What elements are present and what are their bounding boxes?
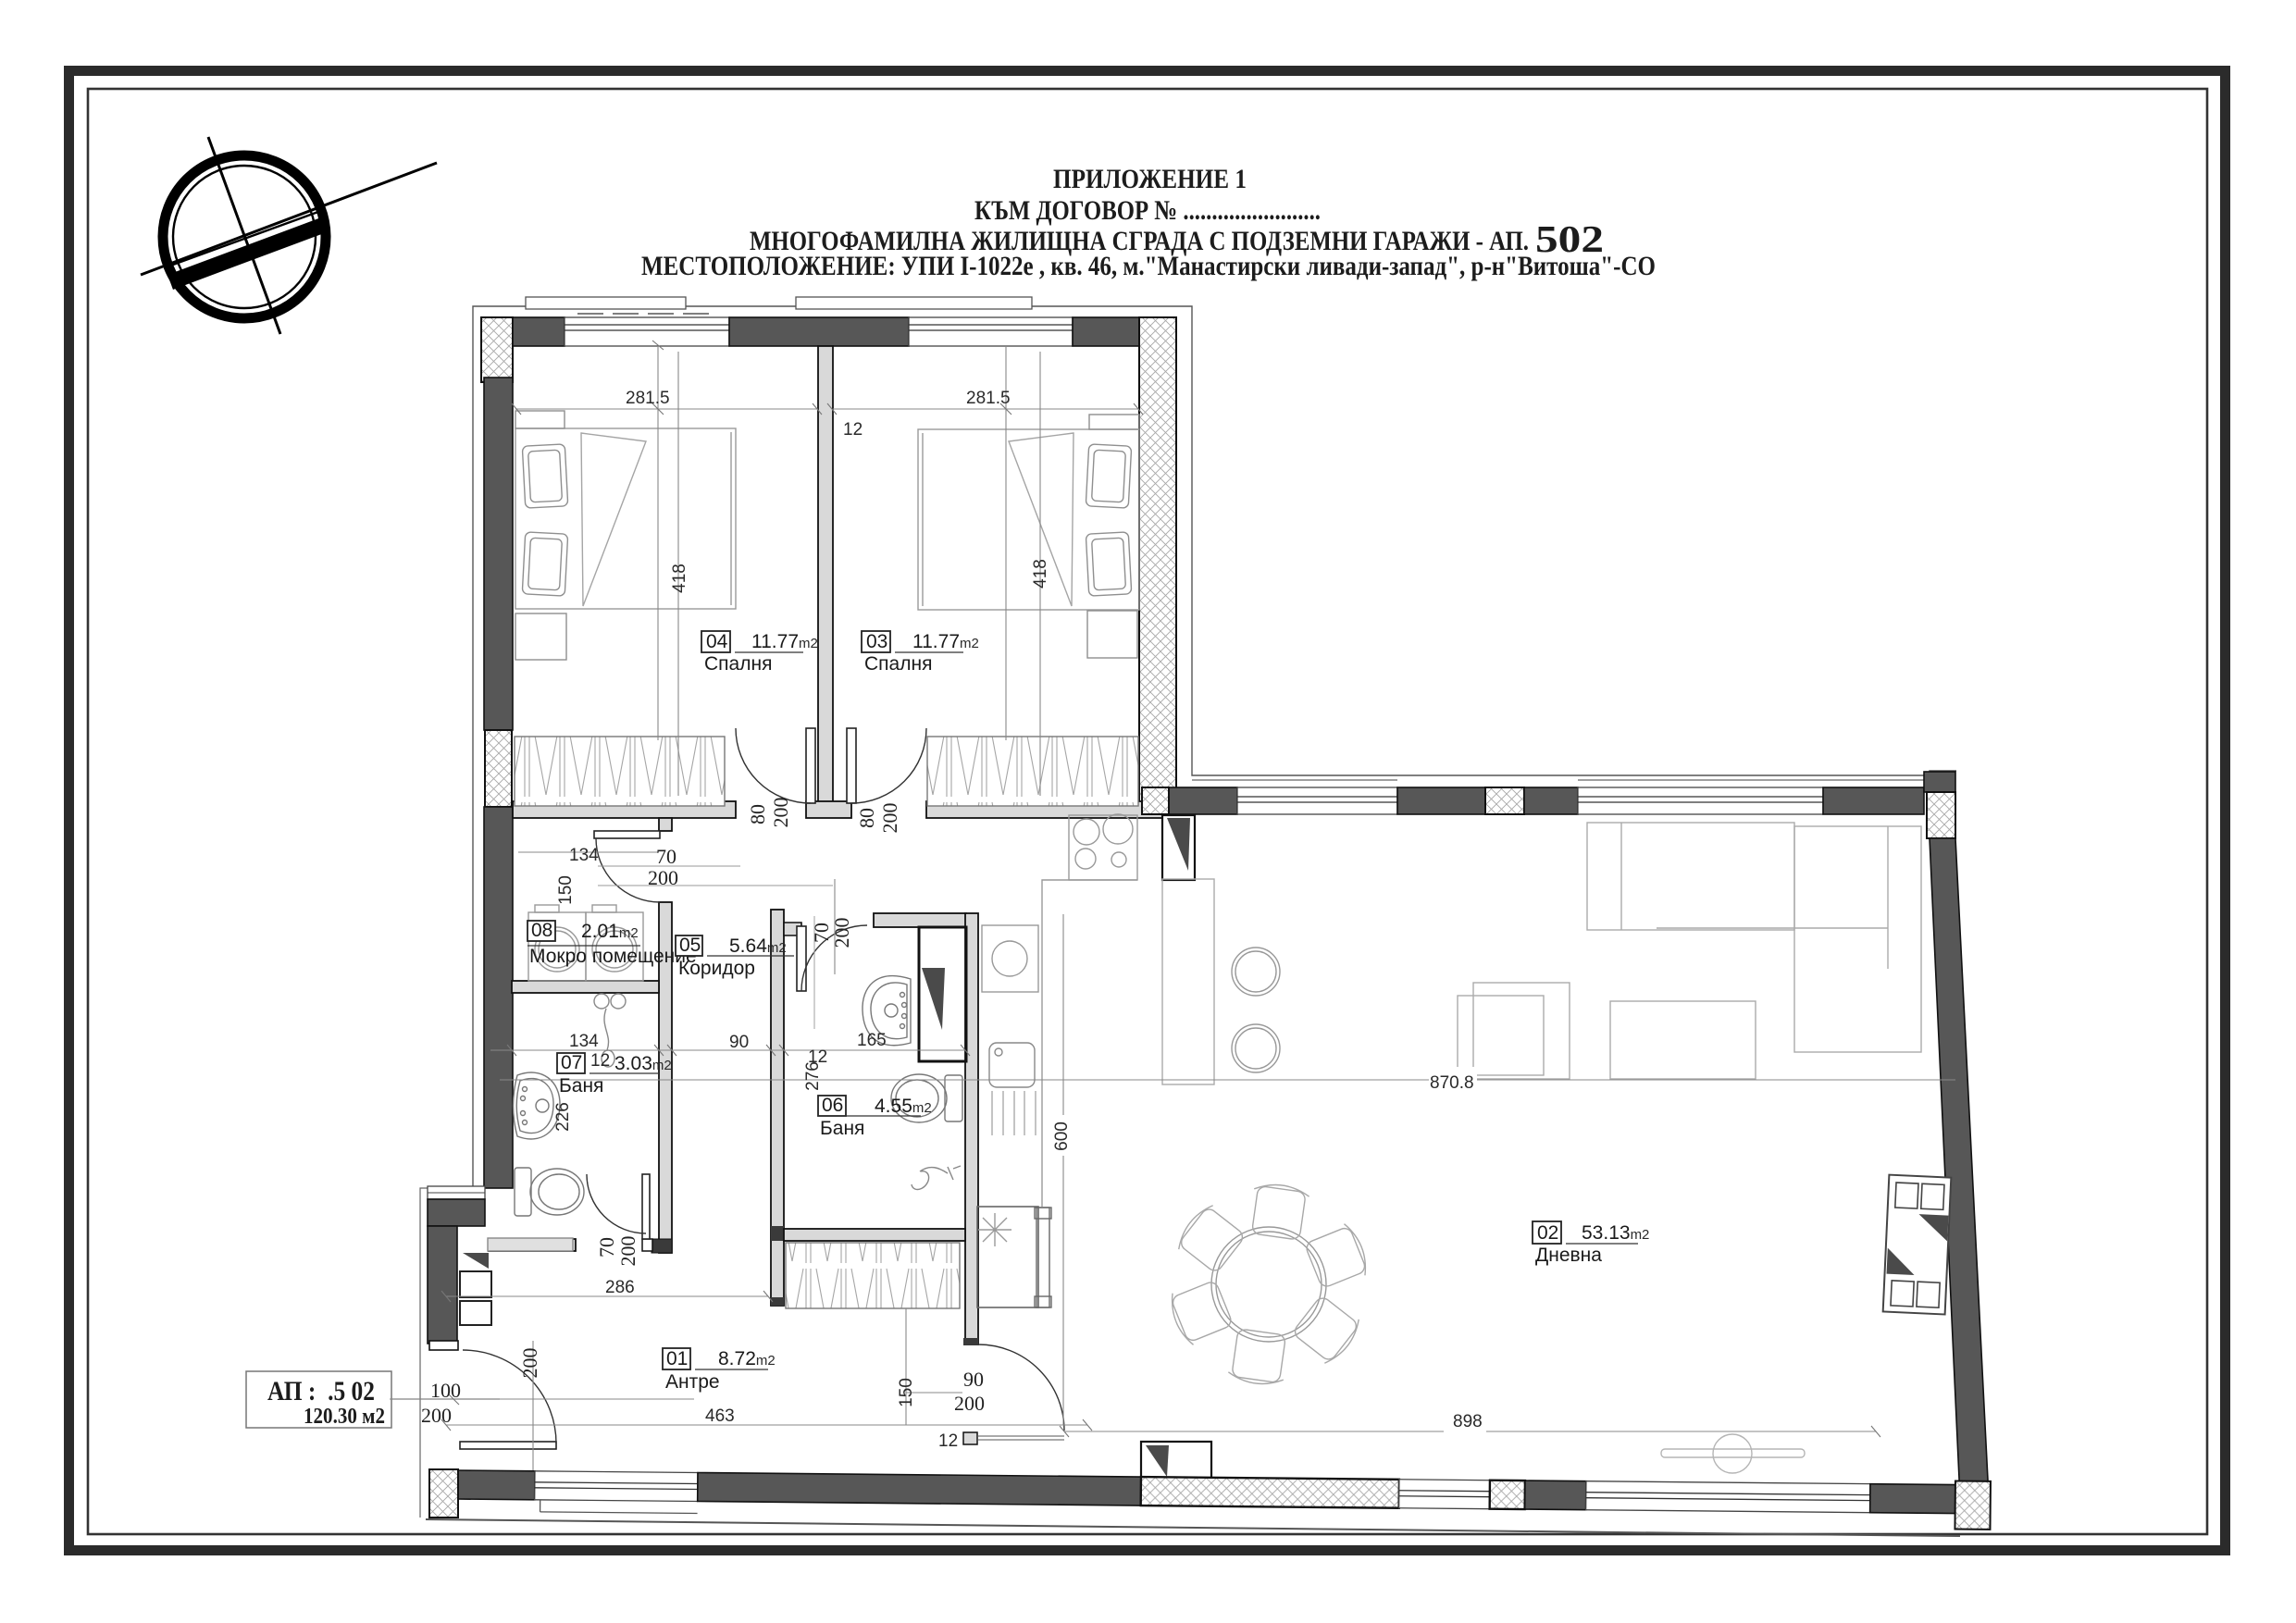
svg-text:04: 04 xyxy=(706,631,728,652)
svg-text:200: 200 xyxy=(878,803,901,834)
svg-text:МЕСТОПОЛОЖЕНИЕ: УПИ I-1022е ,: МЕСТОПОЛОЖЕНИЕ: УПИ I-1022е , кв. 46, м.… xyxy=(641,251,1656,281)
svg-text:70: 70 xyxy=(656,845,676,868)
svg-text:12: 12 xyxy=(938,1431,958,1451)
svg-text:Спалня: Спалня xyxy=(864,653,932,675)
svg-text:01: 01 xyxy=(666,1348,688,1369)
svg-text:90: 90 xyxy=(729,1033,749,1052)
svg-text:Спалня: Спалня xyxy=(704,653,772,675)
svg-text:165: 165 xyxy=(857,1031,887,1050)
svg-text:898: 898 xyxy=(1453,1412,1483,1431)
svg-text:200: 200 xyxy=(616,1236,639,1267)
svg-text:276: 276 xyxy=(803,1061,823,1091)
svg-text:463: 463 xyxy=(705,1406,735,1426)
svg-text:Баня: Баня xyxy=(820,1118,864,1139)
svg-text:12: 12 xyxy=(590,1051,610,1071)
svg-text:КЪМ ДОГОВОР № ................: КЪМ ДОГОВОР № ........................ xyxy=(974,195,1321,226)
svg-text:80: 80 xyxy=(746,804,769,824)
svg-text:90: 90 xyxy=(963,1368,984,1391)
svg-text:Антре: Антре xyxy=(665,1371,720,1393)
svg-text:80: 80 xyxy=(855,808,878,828)
svg-text:286: 286 xyxy=(605,1278,635,1297)
svg-text:ПРИЛОЖЕНИЕ 1: ПРИЛОЖЕНИЕ 1 xyxy=(1053,164,1247,194)
svg-text:870.8: 870.8 xyxy=(1430,1073,1474,1093)
svg-text:281.5: 281.5 xyxy=(626,389,670,408)
svg-text:200: 200 xyxy=(648,866,678,889)
svg-text:200: 200 xyxy=(830,918,853,948)
svg-text:150: 150 xyxy=(556,875,576,905)
svg-text:120.30 м2: 120.30 м2 xyxy=(304,1405,385,1429)
svg-text:Коридор: Коридор xyxy=(678,958,755,979)
svg-text:Баня: Баня xyxy=(559,1075,603,1096)
svg-text:03: 03 xyxy=(866,631,887,652)
svg-text:70: 70 xyxy=(595,1237,618,1258)
svg-text:418: 418 xyxy=(1031,559,1050,588)
svg-text:06: 06 xyxy=(822,1095,843,1116)
svg-text:200: 200 xyxy=(421,1404,452,1427)
svg-text:600: 600 xyxy=(1052,1121,1072,1151)
svg-text:418: 418 xyxy=(670,564,689,593)
svg-text:134: 134 xyxy=(569,846,599,865)
svg-text:200: 200 xyxy=(518,1348,541,1379)
svg-text:200: 200 xyxy=(769,798,792,828)
svg-text:05: 05 xyxy=(679,935,701,956)
svg-text:226: 226 xyxy=(553,1102,573,1132)
svg-text:281.5: 281.5 xyxy=(966,389,1011,408)
svg-text:АП : .5 02: АП : .5 02 xyxy=(267,1376,375,1406)
svg-text:07: 07 xyxy=(561,1052,582,1073)
svg-text:Дневна: Дневна xyxy=(1535,1245,1602,1266)
svg-text:02: 02 xyxy=(1537,1222,1558,1244)
svg-text:134: 134 xyxy=(569,1032,599,1051)
svg-text:Мокро помещение: Мокро помещение xyxy=(529,946,697,967)
svg-text:200: 200 xyxy=(954,1392,985,1415)
svg-text:12: 12 xyxy=(843,420,863,440)
svg-text:100: 100 xyxy=(430,1379,461,1402)
svg-text:08: 08 xyxy=(531,920,552,941)
svg-text:150: 150 xyxy=(897,1378,916,1407)
